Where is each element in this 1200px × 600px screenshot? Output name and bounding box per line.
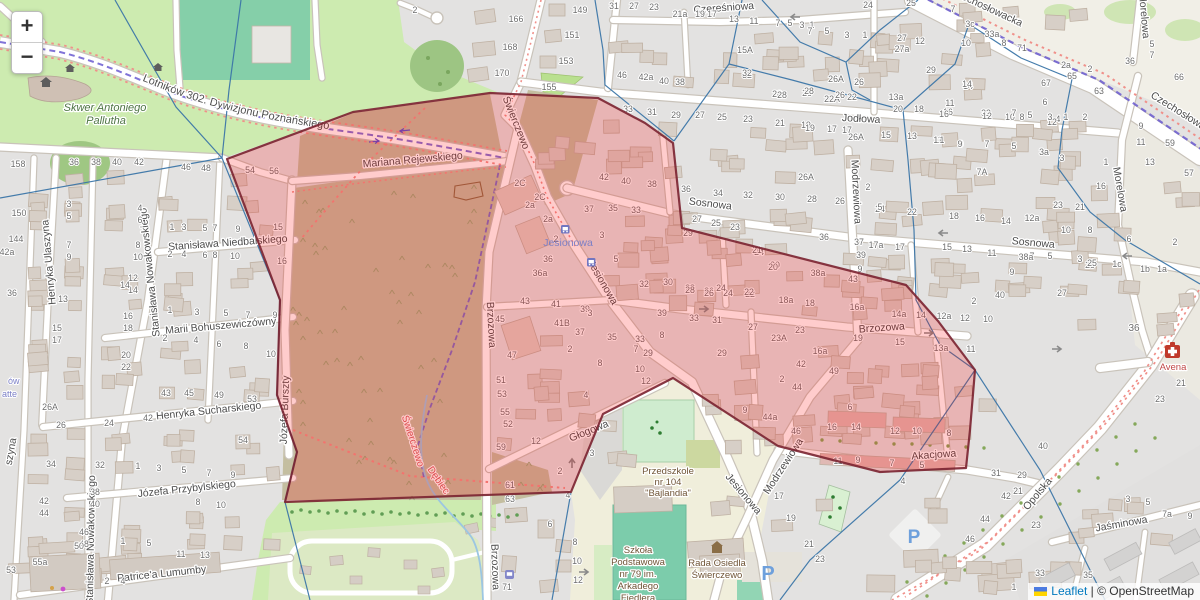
svg-text:Fiedlera: Fiedlera [621, 593, 656, 600]
svg-text:36: 36 [1125, 56, 1135, 66]
svg-text:1a: 1a [1157, 264, 1167, 274]
svg-text:7: 7 [951, 4, 956, 14]
svg-text:18: 18 [123, 323, 133, 333]
svg-text:Przedszkole: Przedszkole [642, 466, 694, 477]
svg-text:11: 11 [987, 248, 996, 258]
svg-text:25: 25 [717, 112, 727, 122]
svg-text:65: 65 [1067, 71, 1077, 81]
svg-text:36: 36 [7, 288, 17, 298]
svg-text:42: 42 [39, 496, 49, 506]
svg-text:17: 17 [895, 242, 905, 252]
svg-text:24: 24 [863, 0, 873, 10]
svg-text:3: 3 [1060, 153, 1065, 163]
svg-text:38: 38 [91, 157, 101, 167]
svg-text:P: P [908, 527, 921, 548]
svg-text:26: 26 [854, 77, 864, 87]
svg-text:4: 4 [121, 576, 126, 586]
svg-text:27: 27 [1057, 288, 1067, 298]
svg-text:27: 27 [695, 110, 705, 120]
svg-text:9: 9 [231, 470, 236, 480]
svg-text:4: 4 [194, 335, 199, 345]
svg-text:9: 9 [1188, 511, 1193, 521]
svg-text:23: 23 [815, 554, 825, 564]
svg-text:150: 150 [12, 208, 27, 218]
svg-text:54: 54 [238, 435, 248, 445]
svg-text:22: 22 [907, 207, 917, 217]
svg-text:25: 25 [906, 0, 916, 8]
svg-text:153: 153 [559, 56, 574, 66]
svg-text:1b: 1b [1140, 264, 1150, 274]
svg-text:7A: 7A [977, 167, 988, 177]
svg-text:5: 5 [147, 538, 152, 548]
svg-text:10: 10 [983, 314, 993, 324]
svg-text:33a: 33a [985, 29, 1000, 39]
svg-text:27: 27 [897, 33, 907, 43]
svg-text:36: 36 [69, 157, 79, 167]
svg-text:6: 6 [1127, 234, 1132, 244]
svg-text:50: 50 [74, 541, 84, 551]
svg-text:23: 23 [1053, 200, 1063, 210]
svg-text:5: 5 [1146, 497, 1151, 507]
svg-text:29: 29 [926, 65, 936, 75]
svg-text:28: 28 [804, 86, 814, 96]
svg-text:42a: 42a [0, 247, 14, 257]
svg-text:Pallutha: Pallutha [86, 115, 126, 127]
svg-text:12: 12 [573, 575, 583, 585]
svg-text:4: 4 [138, 203, 143, 213]
svg-text:6: 6 [1043, 97, 1048, 107]
svg-text:13: 13 [729, 14, 739, 24]
svg-text:46: 46 [617, 70, 627, 80]
svg-text:10: 10 [133, 252, 143, 262]
svg-text:26A: 26A [798, 172, 814, 182]
svg-text:42: 42 [134, 157, 144, 167]
svg-text:8: 8 [1002, 38, 1007, 48]
svg-text:46: 46 [965, 534, 975, 544]
svg-text:2: 2 [105, 576, 110, 586]
svg-text:Avena: Avena [1160, 362, 1187, 373]
svg-text:24: 24 [104, 418, 114, 428]
svg-text:15: 15 [52, 323, 62, 333]
svg-text:23: 23 [1155, 394, 1165, 404]
svg-text:8: 8 [1088, 225, 1093, 235]
svg-text:3: 3 [1126, 494, 1131, 504]
svg-text:2: 2 [1083, 112, 1088, 122]
svg-text:38: 38 [675, 77, 685, 87]
svg-text:15: 15 [942, 242, 952, 252]
svg-text:17: 17 [827, 124, 837, 134]
svg-text:29: 29 [1017, 470, 1027, 480]
svg-text:5: 5 [182, 465, 187, 475]
svg-text:7: 7 [808, 26, 813, 36]
svg-text:2: 2 [413, 5, 418, 15]
svg-text:27a: 27a [895, 44, 910, 54]
svg-text:13a: 13a [889, 92, 904, 102]
svg-text:10: 10 [230, 251, 240, 261]
svg-text:26: 26 [835, 196, 845, 206]
svg-text:40: 40 [112, 157, 122, 167]
svg-text:46: 46 [79, 527, 89, 537]
svg-text:57: 57 [1184, 168, 1194, 178]
svg-text:Jesionowa: Jesionowa [543, 237, 593, 249]
svg-text:Rada Osiedla: Rada Osiedla [688, 558, 746, 569]
svg-text:21: 21 [804, 539, 814, 549]
svg-text:32: 32 [743, 190, 753, 200]
svg-text:155: 155 [542, 82, 557, 92]
svg-text:9: 9 [236, 224, 241, 234]
svg-text:67: 67 [1041, 78, 1051, 88]
svg-text:2: 2 [972, 296, 977, 306]
svg-text:170: 170 [495, 68, 510, 78]
svg-text:21: 21 [1013, 486, 1023, 496]
svg-text:40: 40 [659, 76, 669, 86]
svg-text:28: 28 [807, 194, 817, 204]
svg-text:11: 11 [749, 16, 758, 26]
svg-text:10: 10 [1061, 225, 1071, 235]
svg-text:Skwer Antoniego: Skwer Antoniego [64, 102, 147, 114]
svg-text:13: 13 [1145, 157, 1155, 167]
svg-text:40: 40 [995, 290, 1005, 300]
svg-text:31: 31 [991, 468, 1001, 478]
svg-text:53: 53 [6, 565, 16, 575]
svg-text:1: 1 [168, 305, 173, 315]
svg-text:7: 7 [207, 468, 212, 478]
svg-text:17: 17 [774, 491, 784, 501]
svg-text:14: 14 [962, 79, 972, 89]
svg-text:59: 59 [1165, 138, 1175, 148]
svg-text:13: 13 [58, 294, 68, 304]
svg-text:38a: 38a [1019, 252, 1034, 262]
svg-text:11: 11 [966, 344, 975, 354]
svg-text:14: 14 [1001, 216, 1011, 226]
svg-text:23: 23 [1031, 520, 1041, 530]
svg-text:23: 23 [743, 114, 753, 124]
svg-text:11: 11 [176, 549, 185, 559]
svg-text:9: 9 [1139, 121, 1144, 131]
svg-text:8: 8 [1020, 112, 1025, 122]
svg-text:nr 79 im.: nr 79 im. [620, 569, 657, 580]
svg-text:16: 16 [123, 311, 133, 321]
svg-text:19: 19 [695, 9, 705, 19]
svg-text:5: 5 [203, 223, 208, 233]
svg-text:1: 1 [863, 30, 868, 40]
svg-text:6: 6 [203, 250, 208, 260]
svg-text:3: 3 [1048, 112, 1053, 122]
svg-text:8: 8 [244, 341, 249, 351]
svg-text:17: 17 [707, 9, 717, 19]
svg-text:2a: 2a [1061, 60, 1071, 70]
svg-text:atte: atte [2, 389, 17, 399]
svg-text:1: 1 [940, 135, 945, 145]
svg-text:17a: 17a [869, 240, 884, 250]
svg-text:42a: 42a [639, 72, 654, 82]
svg-text:71: 71 [1017, 43, 1027, 53]
svg-text:3: 3 [195, 307, 200, 317]
svg-text:3: 3 [1078, 254, 1083, 264]
svg-text:27: 27 [692, 214, 702, 224]
svg-text:25: 25 [711, 218, 721, 228]
svg-text:16: 16 [975, 213, 985, 223]
svg-text:Podstawowa: Podstawowa [611, 557, 666, 568]
svg-text:25: 25 [1087, 258, 1097, 268]
svg-text:23: 23 [649, 2, 659, 12]
svg-text:3: 3 [67, 199, 72, 209]
svg-text:6: 6 [548, 519, 553, 529]
svg-text:5: 5 [825, 26, 830, 36]
svg-text:11: 11 [1136, 137, 1145, 147]
svg-text:11: 11 [945, 98, 954, 108]
svg-text:3a: 3a [1039, 147, 1049, 157]
svg-text:7: 7 [1150, 50, 1155, 60]
svg-text:22: 22 [121, 362, 131, 372]
svg-text:21: 21 [1075, 202, 1085, 212]
svg-text:9: 9 [67, 252, 72, 262]
svg-text:7: 7 [1012, 108, 1017, 118]
svg-text:14: 14 [120, 280, 130, 290]
svg-text:3: 3 [590, 448, 595, 458]
svg-text:21: 21 [775, 118, 785, 128]
svg-text:Jodłowa: Jodłowa [842, 112, 881, 126]
svg-text:42: 42 [143, 413, 153, 423]
svg-text:Brzozowa: Brzozowa [488, 544, 502, 591]
svg-text:32: 32 [95, 460, 105, 470]
svg-text:5: 5 [788, 18, 793, 28]
svg-text:5: 5 [1028, 110, 1033, 120]
svg-text:7: 7 [67, 240, 72, 250]
svg-text:42: 42 [1001, 491, 1011, 501]
svg-text:36: 36 [819, 232, 829, 242]
svg-text:2: 2 [1173, 237, 1178, 247]
svg-text:63: 63 [505, 494, 515, 504]
svg-text:48: 48 [201, 163, 211, 173]
svg-text:36: 36 [1128, 323, 1140, 334]
svg-text:1: 1 [1104, 157, 1109, 167]
svg-text:Szkoła: Szkoła [624, 545, 653, 556]
svg-text:63: 63 [1094, 86, 1104, 96]
svg-text:5: 5 [878, 202, 883, 212]
svg-text:34: 34 [46, 459, 56, 469]
svg-text:27: 27 [629, 1, 639, 11]
svg-text:1: 1 [136, 461, 141, 471]
svg-text:8: 8 [196, 497, 201, 507]
svg-text:15A: 15A [737, 45, 753, 55]
svg-text:6: 6 [138, 215, 143, 225]
svg-text:23: 23 [730, 222, 740, 232]
svg-text:"Bajlandia": "Bajlandia" [645, 488, 691, 499]
svg-text:1c: 1c [1112, 259, 1122, 269]
svg-text:43: 43 [161, 388, 171, 398]
svg-text:8: 8 [213, 250, 218, 260]
svg-text:44: 44 [980, 514, 990, 524]
svg-text:39: 39 [856, 250, 866, 260]
svg-text:26A: 26A [828, 74, 844, 84]
svg-text:26A: 26A [848, 132, 864, 142]
svg-text:1: 1 [1064, 112, 1069, 122]
svg-text:1: 1 [1012, 582, 1017, 592]
svg-text:38: 38 [90, 487, 100, 497]
svg-text:15: 15 [881, 130, 891, 140]
svg-text:151: 151 [565, 30, 580, 40]
svg-text:10: 10 [572, 556, 582, 566]
svg-text:45: 45 [184, 388, 194, 398]
svg-text:7: 7 [213, 223, 218, 233]
svg-text:1: 1 [170, 222, 175, 232]
svg-text:7: 7 [246, 310, 251, 320]
svg-text:29: 29 [671, 110, 681, 120]
svg-text:26: 26 [835, 90, 845, 100]
svg-text:71: 71 [502, 582, 512, 592]
svg-text:3: 3 [157, 463, 162, 473]
svg-text:7a: 7a [1162, 509, 1172, 519]
svg-text:8: 8 [136, 240, 141, 250]
svg-text:6: 6 [217, 339, 222, 349]
svg-text:4: 4 [901, 476, 906, 486]
svg-text:3c: 3c [965, 19, 975, 29]
svg-text:10: 10 [961, 38, 971, 48]
svg-text:19: 19 [786, 513, 796, 523]
svg-text:34: 34 [713, 188, 723, 198]
svg-text:2: 2 [163, 333, 168, 343]
svg-text:18: 18 [949, 211, 959, 221]
svg-text:22: 22 [847, 92, 857, 102]
svg-text:16: 16 [1096, 181, 1106, 191]
svg-text:55a: 55a [33, 557, 48, 567]
svg-text:9: 9 [1010, 267, 1015, 277]
svg-text:1: 1 [121, 536, 126, 546]
svg-text:3: 3 [182, 222, 187, 232]
svg-text:49: 49 [214, 390, 224, 400]
svg-text:12a: 12a [937, 311, 952, 321]
svg-text:28: 28 [777, 90, 787, 100]
svg-text:2: 2 [1088, 64, 1093, 74]
svg-text:21a: 21a [673, 9, 688, 19]
svg-text:10: 10 [216, 500, 226, 510]
svg-text:31: 31 [609, 1, 619, 11]
svg-text:5: 5 [224, 308, 229, 318]
svg-text:40: 40 [90, 499, 100, 509]
svg-text:Świerczewo: Świerczewo [692, 569, 743, 581]
svg-text:40: 40 [1038, 441, 1048, 451]
svg-text:53: 53 [247, 394, 257, 404]
svg-text:3: 3 [800, 20, 805, 30]
svg-text:5: 5 [1012, 141, 1017, 151]
svg-text:19: 19 [805, 123, 815, 133]
svg-text:35: 35 [1083, 570, 1093, 580]
svg-text:158: 158 [11, 159, 26, 169]
svg-text:13: 13 [962, 244, 972, 254]
svg-text:9: 9 [958, 139, 963, 149]
svg-text:12: 12 [915, 36, 925, 46]
svg-text:36: 36 [681, 184, 691, 194]
svg-text:2: 2 [866, 182, 871, 192]
svg-text:149: 149 [573, 5, 588, 15]
svg-text:20: 20 [121, 350, 131, 360]
svg-text:66: 66 [1174, 72, 1184, 82]
svg-text:8: 8 [573, 537, 578, 547]
svg-text:5: 5 [1150, 39, 1155, 49]
svg-text:18: 18 [914, 104, 924, 114]
svg-text:166: 166 [509, 14, 524, 24]
svg-text:7: 7 [985, 139, 990, 149]
svg-text:5: 5 [67, 211, 72, 221]
svg-text:46: 46 [181, 162, 191, 172]
svg-text:20: 20 [893, 104, 903, 114]
svg-text:Arkadego: Arkadego [618, 581, 659, 592]
svg-text:44: 44 [39, 508, 49, 518]
svg-text:3: 3 [845, 30, 850, 40]
svg-text:30: 30 [775, 192, 785, 202]
svg-text:P: P [761, 563, 774, 585]
svg-text:17: 17 [52, 335, 62, 345]
svg-text:26: 26 [56, 420, 66, 430]
svg-text:7: 7 [776, 18, 781, 28]
svg-text:ów: ów [8, 376, 20, 386]
svg-text:21: 21 [1176, 378, 1186, 388]
svg-text:13: 13 [907, 131, 917, 141]
svg-text:2: 2 [168, 249, 173, 259]
svg-text:4: 4 [182, 249, 187, 259]
svg-text:13: 13 [200, 550, 210, 560]
svg-text:33: 33 [1035, 568, 1045, 578]
svg-text:168: 168 [503, 42, 518, 52]
svg-text:32: 32 [742, 68, 752, 78]
svg-text:12: 12 [982, 111, 992, 121]
svg-text:9: 9 [273, 310, 278, 320]
svg-text:26A: 26A [42, 402, 58, 412]
svg-text:nr 104: nr 104 [655, 477, 682, 488]
svg-text:12a: 12a [1025, 213, 1040, 223]
svg-text:12: 12 [960, 313, 970, 323]
svg-text:16: 16 [939, 109, 949, 119]
svg-text:5: 5 [1048, 251, 1053, 261]
svg-text:37: 37 [854, 237, 864, 247]
svg-text:144: 144 [9, 234, 24, 244]
svg-text:10: 10 [266, 349, 276, 359]
svg-text:31: 31 [647, 107, 657, 117]
